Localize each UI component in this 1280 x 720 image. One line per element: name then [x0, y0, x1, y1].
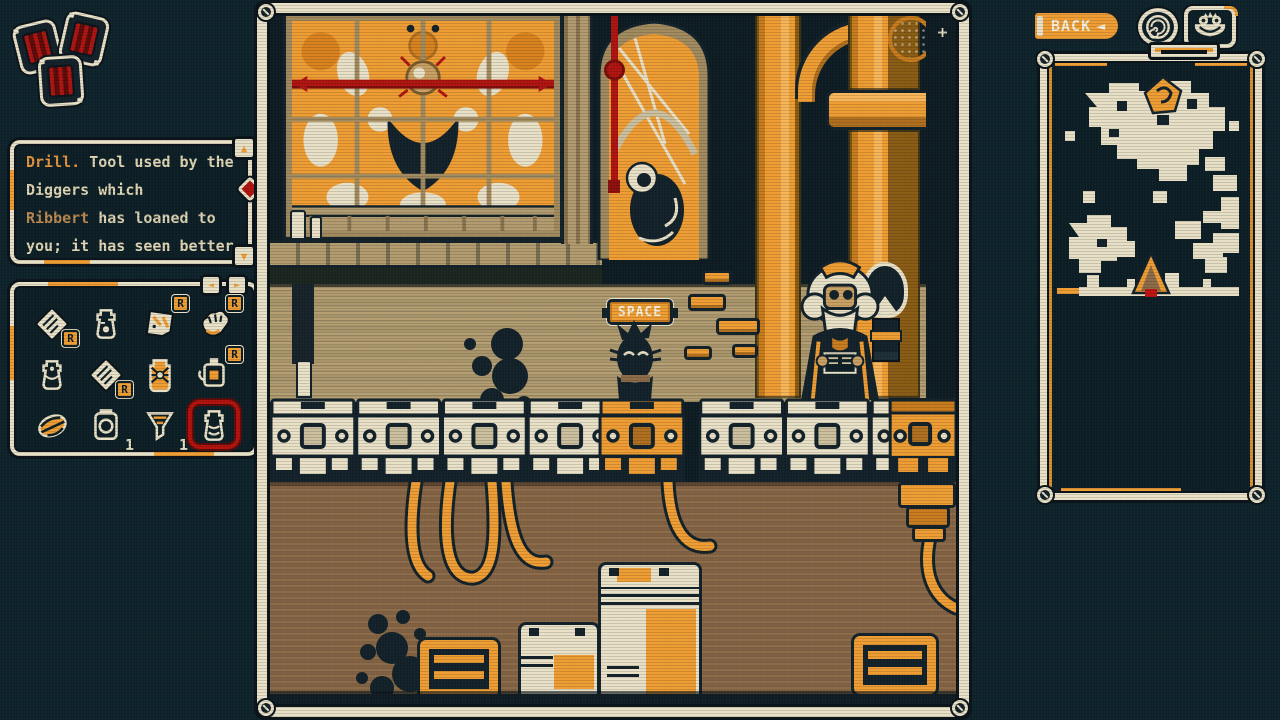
brick — [716, 318, 760, 335]
drill-icon — [194, 405, 234, 445]
back-button[interactable]: BACK ◄ — [1032, 10, 1121, 42]
supply-canister-small — [518, 622, 600, 704]
candle-prop — [310, 216, 322, 240]
item-description-text: Drill. Tool used by theDiggers whichRibb… — [26, 148, 242, 260]
inventory-next-button[interactable]: ► — [226, 274, 248, 296]
inventory-panel: ◄ ► R — [10, 282, 258, 456]
frog-face-icon — [1191, 12, 1229, 42]
readable-badge: R — [116, 381, 133, 398]
screw-icon — [258, 700, 274, 716]
scroll-up-button[interactable]: ▲ — [232, 136, 256, 160]
screw-icon — [258, 4, 274, 20]
npc-elder-digger — [792, 252, 888, 402]
inventory-item-letter-card-2[interactable]: R — [80, 349, 132, 398]
item-description-box: Drill. Tool used by theDiggers whichRibb… — [10, 140, 252, 264]
coil-glyph — [1144, 13, 1172, 41]
inventory-pager: ◄ ► — [200, 274, 248, 296]
candle-prop — [290, 210, 306, 240]
panel-vent-ornament — [1148, 42, 1220, 60]
machine-pot — [898, 482, 956, 508]
supply-canister-large — [598, 562, 702, 704]
corner-ornament — [1224, 6, 1238, 16]
readable-badge: R — [226, 346, 243, 363]
canister-icon — [86, 405, 126, 445]
readable-badge: R — [226, 295, 243, 312]
brick — [688, 294, 726, 311]
clay-pot-icon — [86, 303, 126, 343]
pallet-crate — [420, 640, 498, 698]
readable-badge: R — [172, 295, 189, 312]
minimap — [1057, 71, 1245, 483]
inventory-item-map-scrap[interactable]: R — [134, 298, 186, 347]
game-screen: Drill. Tool used by theDiggers whichRibb… — [0, 0, 1280, 720]
pilaster — [561, 16, 593, 244]
wall-alcove — [292, 284, 314, 364]
brick — [702, 270, 732, 285]
screw-icon — [1249, 487, 1265, 503]
shadow-band — [270, 268, 602, 284]
inventory-item-lantern[interactable]: R — [188, 349, 240, 398]
wall-post — [296, 360, 312, 398]
ornate-pot-icon — [140, 354, 180, 394]
back-arrow-icon: ◄ — [1096, 17, 1106, 35]
item-name-text: Drill. — [26, 153, 80, 171]
screw-icon — [1249, 51, 1265, 67]
inventory-item-drill-selected[interactable] — [188, 400, 240, 449]
left-arrow-icon: ◄ — [208, 280, 214, 291]
inventory-item-clay-pot[interactable] — [80, 298, 132, 347]
inventory-item-canister[interactable]: 1 — [80, 400, 132, 449]
floor-edge-band — [270, 694, 956, 704]
card-token-icon — [37, 55, 84, 108]
screw-icon — [952, 700, 968, 716]
collectible-tokens — [12, 8, 132, 118]
item-count: 1 — [179, 436, 188, 454]
stone-ledge — [270, 240, 602, 268]
screw-icon — [1037, 51, 1053, 67]
map-player-marker-icon — [1133, 253, 1169, 297]
inventory-grid: R R R — [26, 298, 240, 449]
inventory-item-drill-bit[interactable]: 1 — [134, 400, 186, 449]
brick — [732, 344, 758, 358]
inventory-item-clay-pot-2[interactable] — [26, 349, 78, 398]
column-capital — [826, 90, 938, 130]
down-arrow-icon: ▼ — [241, 250, 248, 263]
readable-badge: R — [62, 330, 79, 347]
inventory-item-shell[interactable] — [26, 400, 78, 449]
scroll-down-button[interactable]: ▼ — [232, 244, 256, 268]
dark-recess — [926, 16, 956, 398]
pallet-crate — [854, 636, 936, 694]
arched-window — [593, 16, 715, 260]
stained-glass-art — [292, 21, 554, 231]
item-count: 1 — [125, 436, 134, 454]
coil-button-icon — [1138, 8, 1178, 46]
inventory-prev-button[interactable]: ◄ — [200, 274, 222, 296]
shell-icon — [32, 405, 72, 445]
npc-name-text: Ribbert — [26, 209, 89, 227]
minimap-panel — [1040, 54, 1262, 500]
inventory-item-gloves[interactable]: R — [188, 298, 240, 347]
machine-pot — [912, 526, 946, 542]
inventory-item-ornate-pot[interactable] — [134, 349, 186, 398]
stained-glass-window — [283, 16, 563, 240]
player-character — [604, 316, 668, 402]
screw-icon — [1037, 487, 1053, 503]
screw-icon — [952, 4, 968, 20]
clay-pot-icon — [32, 354, 72, 394]
brick — [684, 346, 712, 360]
game-scene[interactable]: SPACE — [270, 16, 956, 704]
platform-row — [270, 398, 956, 482]
machine-pot — [906, 506, 950, 528]
up-arrow-icon: ▲ — [241, 142, 248, 155]
right-arrow-icon: ► — [234, 280, 240, 291]
inventory-item-letter-card[interactable]: R — [26, 298, 78, 347]
drill-bit-icon — [140, 405, 180, 445]
game-viewport: SPACE — [257, 3, 969, 717]
back-label: BACK — [1051, 17, 1091, 35]
